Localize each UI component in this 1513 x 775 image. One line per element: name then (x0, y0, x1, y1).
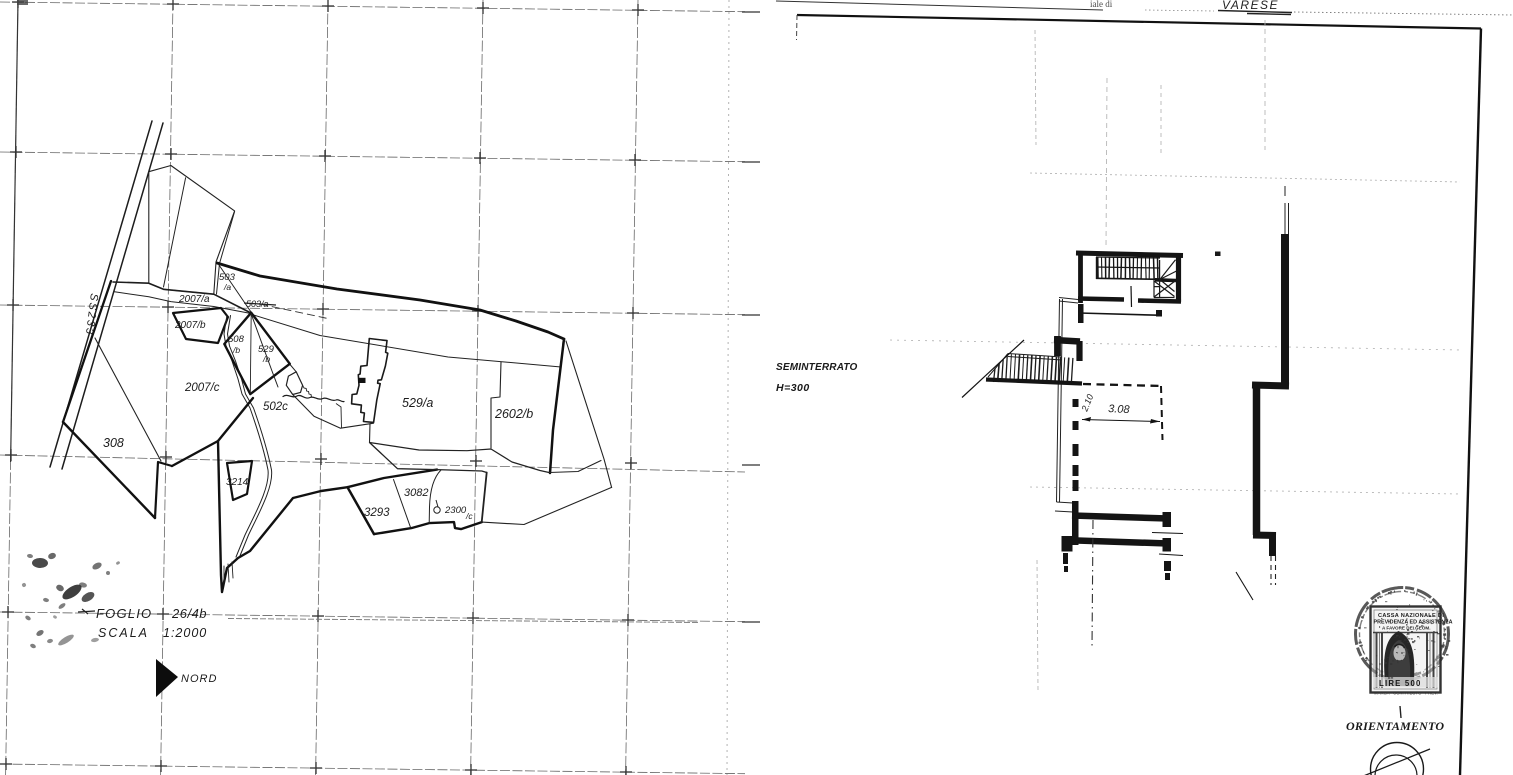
svg-text:LIRE 500: LIRE 500 (1379, 679, 1422, 688)
svg-text:308: 308 (103, 436, 124, 450)
svg-text:/a: /a (223, 282, 231, 292)
svg-text:2602/b: 2602/b (494, 407, 533, 421)
svg-text:2007/a: 2007/a (178, 294, 210, 305)
svg-text:3082: 3082 (404, 487, 428, 499)
svg-text:CASSA NAZIONALE DI: CASSA NAZIONALE DI (1378, 613, 1444, 619)
svg-text:3293: 3293 (364, 507, 390, 519)
svg-text:/c: /c (465, 511, 473, 521)
svg-text:SCALA: SCALA (98, 626, 149, 640)
svg-text:2300: 2300 (444, 505, 467, 516)
svg-text:iale di: iale di (1090, 0, 1113, 9)
svg-text:H=300: H=300 (776, 382, 810, 394)
svg-text:2007/c: 2007/c (184, 382, 220, 394)
svg-text:26/4b: 26/4b (171, 606, 207, 621)
svg-text:/b: /b (232, 345, 240, 355)
svg-text:2007/b: 2007/b (174, 320, 206, 331)
svg-text:3214: 3214 (226, 477, 249, 488)
svg-text:FOGLIO: FOGLIO (96, 606, 152, 621)
svg-text:ORIENTAMENTO: ORIENTAMENTO (1346, 719, 1444, 733)
svg-text:SEMINTERRATO: SEMINTERRATO (776, 362, 857, 373)
svg-text:3.08: 3.08 (1108, 403, 1131, 416)
svg-text:NORD: NORD (181, 673, 217, 685)
svg-text:/b: /b (262, 354, 270, 364)
svg-text:MARCA · CONTRIBUTO · PREV.: MARCA · CONTRIBUTO · PREV. (1374, 691, 1438, 696)
svg-text:529/a: 529/a (402, 396, 433, 410)
svg-text:502c: 502c (263, 401, 288, 413)
svg-text:1:2000: 1:2000 (163, 626, 207, 640)
svg-text:508: 508 (228, 334, 245, 345)
